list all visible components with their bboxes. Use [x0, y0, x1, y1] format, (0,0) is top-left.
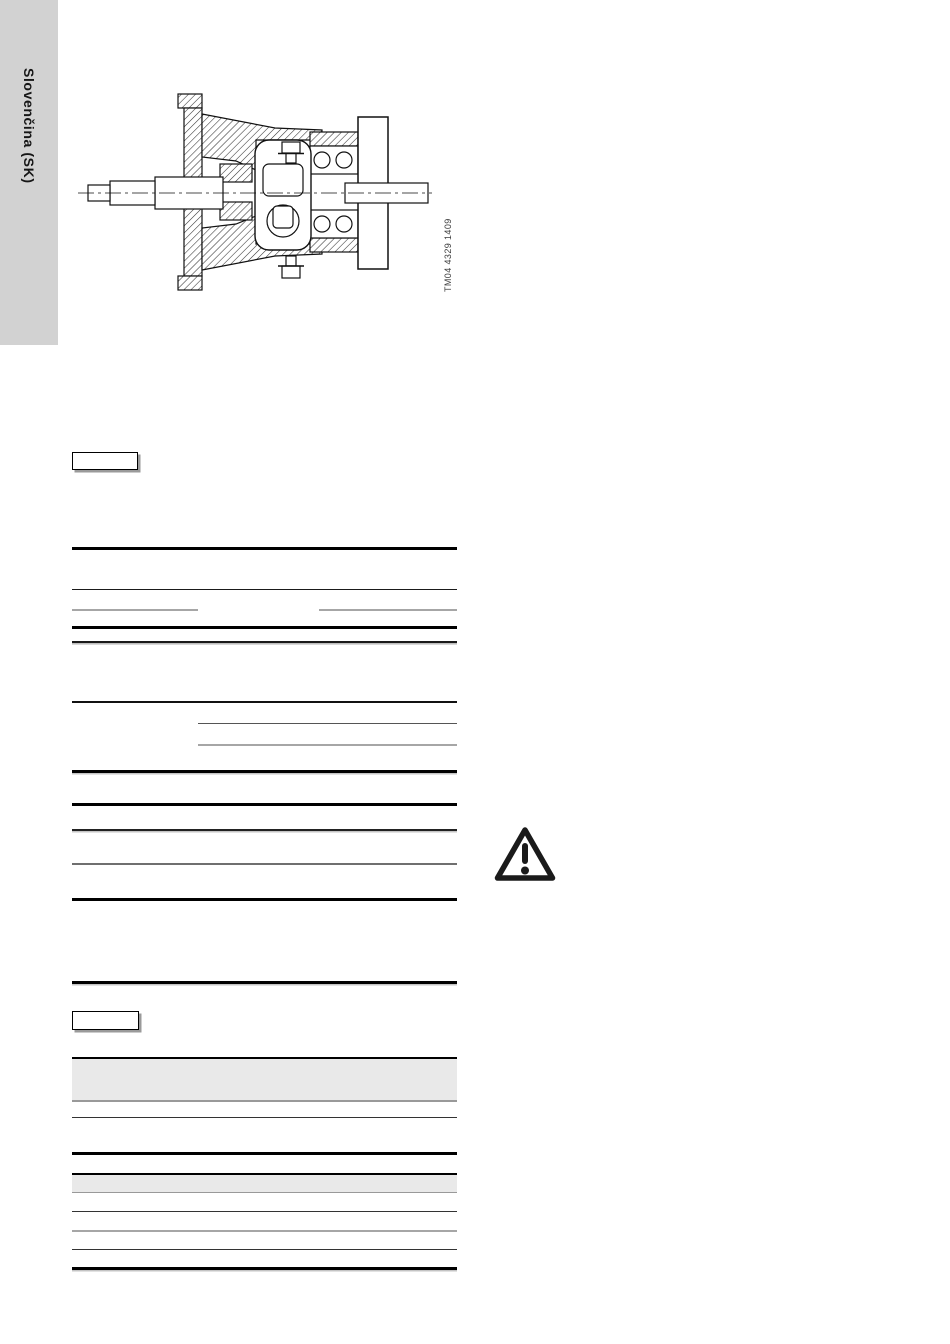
table-rule — [72, 641, 457, 643]
table-header-band — [72, 1059, 457, 1100]
table-rule — [72, 1192, 457, 1194]
table-rule — [72, 609, 198, 611]
warning-triangle-icon — [494, 825, 556, 884]
table-rule — [72, 701, 457, 703]
table-rule — [72, 1211, 457, 1212]
language-tab: Slovenčina (SK) — [0, 0, 58, 345]
technical-drawing — [70, 78, 460, 308]
table-rule — [72, 626, 457, 629]
table-rule — [72, 803, 457, 806]
table-rule — [72, 770, 457, 773]
table-rule — [319, 609, 457, 611]
table-rule — [72, 898, 457, 901]
table-rule — [72, 1249, 457, 1250]
table-rule — [72, 547, 457, 550]
table-rule — [72, 1117, 457, 1118]
table-rule — [72, 1230, 457, 1232]
table-rule — [72, 863, 457, 865]
table-rule — [198, 744, 457, 746]
table-rule — [72, 1100, 457, 1102]
table-rule — [72, 981, 457, 984]
table-rule — [72, 1267, 457, 1270]
figure-code: TM04 4329 1409 — [443, 218, 453, 292]
table-rule — [72, 589, 457, 591]
table-rule — [198, 723, 457, 725]
document-page: Slovenčina (SK) — [0, 0, 950, 1344]
note-box — [72, 1011, 139, 1030]
table-rule — [72, 1152, 457, 1155]
language-tab-label: Slovenčina (SK) — [21, 68, 37, 184]
table-rule — [72, 829, 457, 831]
note-box — [72, 452, 138, 470]
table-header-band — [72, 1175, 457, 1192]
